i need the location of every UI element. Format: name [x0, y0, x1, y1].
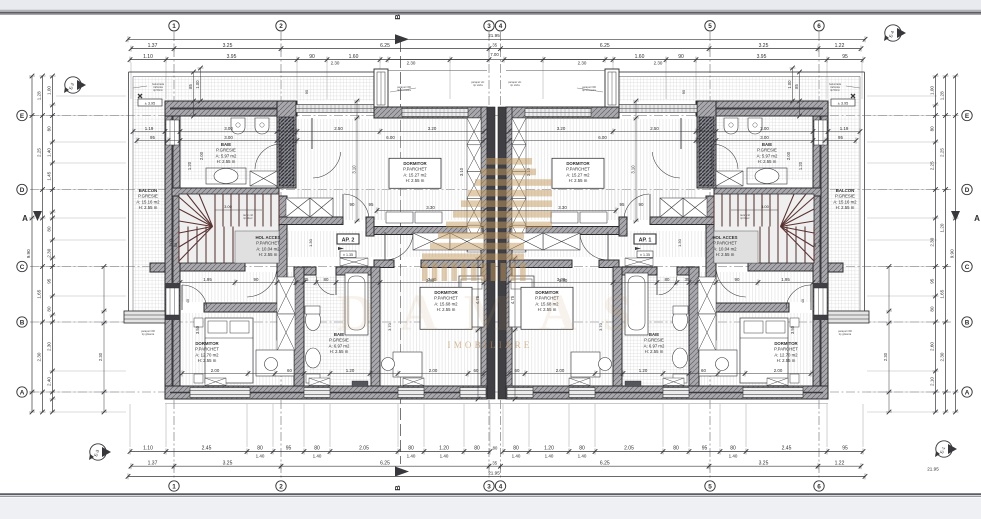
svg-text:2.00: 2.00	[199, 151, 204, 160]
svg-text:A: A	[22, 214, 28, 223]
svg-text:P.PARCHET: P.PARCHET	[566, 167, 590, 172]
svg-text:3.50: 3.50	[195, 325, 200, 334]
svg-text:P.PARCHET: P.PARCHET	[256, 241, 280, 246]
svg-text:50: 50	[174, 243, 178, 247]
svg-text:1.10: 1.10	[143, 446, 153, 452]
svg-text:A: 12.70 m2: A: 12.70 m2	[774, 352, 798, 357]
svg-text:1.37: 1.37	[148, 43, 158, 49]
svg-text:2.30: 2.30	[940, 352, 945, 361]
svg-text:3.95: 3.95	[757, 54, 767, 60]
svg-text:3.00: 3.00	[224, 204, 233, 209]
svg-text:3.30: 3.30	[559, 278, 568, 283]
svg-text:3.30: 3.30	[558, 205, 567, 210]
svg-text:1.20: 1.20	[544, 446, 554, 452]
svg-text:1.28: 1.28	[37, 91, 42, 100]
svg-text:2.30: 2.30	[331, 61, 340, 66]
svg-text:E: E	[20, 113, 25, 120]
svg-text:A: 15.16 m2: A: 15.16 m2	[833, 199, 857, 204]
svg-text:1.20: 1.20	[439, 446, 449, 452]
svg-text:90: 90	[678, 54, 684, 60]
svg-text:1.00: 1.00	[787, 80, 792, 89]
svg-text:H: 2.55 m: H: 2.55 m	[139, 205, 158, 210]
svg-text:1.28: 1.28	[940, 91, 945, 100]
svg-text:A: 5.97 m2: A: 5.97 m2	[757, 153, 778, 158]
svg-text:1.95: 1.95	[203, 277, 212, 282]
svg-text:H: 2.55 m: H: 2.55 m	[217, 159, 236, 164]
svg-text:tip:firisor: tip:firisor	[243, 217, 252, 220]
svg-text:1.40: 1.40	[729, 454, 738, 459]
svg-text:1.60: 1.60	[635, 54, 645, 60]
svg-text:3.25: 3.25	[759, 43, 769, 49]
svg-text:2.45: 2.45	[782, 446, 792, 452]
svg-text:80: 80	[257, 446, 263, 452]
svg-text:40: 40	[290, 128, 294, 132]
svg-text:3: 3	[487, 483, 491, 490]
svg-text:1.40: 1.40	[512, 454, 521, 459]
svg-text:H: 2.55 m: H: 2.55 m	[198, 358, 217, 363]
svg-text:90: 90	[254, 277, 259, 282]
svg-text:95: 95	[702, 446, 708, 452]
svg-text:3.10: 3.10	[351, 165, 356, 174]
svg-text:95: 95	[286, 446, 292, 452]
svg-text:tip glisanta: tip glisanta	[142, 332, 155, 336]
svg-text:80: 80	[474, 446, 480, 452]
svg-text:40: 40	[186, 299, 190, 303]
svg-text:D: D	[965, 187, 970, 194]
svg-text:H: 2.55 m: H: 2.55 m	[259, 252, 278, 257]
svg-text:tip:firisor: tip:firisor	[740, 217, 749, 220]
svg-text:2.00: 2.00	[429, 368, 438, 373]
svg-text:1.40: 1.40	[313, 454, 322, 459]
svg-text:80: 80	[47, 126, 52, 132]
svg-text:40: 40	[699, 128, 703, 132]
svg-text:95: 95	[304, 89, 309, 94]
svg-text:H: 2.55 m: H: 2.55 m	[569, 178, 588, 183]
svg-text:A: 5.97 m2: A: 5.97 m2	[216, 153, 237, 158]
svg-text:5: 5	[708, 483, 712, 490]
svg-text:tip sticla: tip sticla	[473, 83, 483, 87]
svg-text:DORMITOR: DORMITOR	[195, 341, 219, 346]
svg-text:6: 6	[817, 483, 821, 490]
svg-text:DORMITOR: DORMITOR	[566, 161, 590, 166]
svg-text:21.95: 21.95	[488, 470, 500, 475]
svg-text:3.00: 3.00	[761, 204, 770, 209]
svg-text:90: 90	[639, 202, 644, 207]
svg-text:A: 6.97 m2: A: 6.97 m2	[644, 343, 665, 348]
svg-text:3.25: 3.25	[223, 460, 233, 466]
svg-text:1.20: 1.20	[798, 161, 803, 170]
svg-text:80: 80	[673, 446, 679, 452]
svg-text:2.30: 2.30	[47, 342, 52, 351]
svg-text:95: 95	[838, 135, 843, 140]
svg-text:1.20: 1.20	[940, 223, 945, 232]
svg-text:80: 80	[579, 446, 585, 452]
svg-text:IMOBILIARE: IMOBILIARE	[448, 340, 533, 350]
svg-text:A: 15.27 m2: A: 15.27 m2	[403, 172, 427, 177]
svg-text:P.PARCHET: P.PARCHET	[195, 347, 219, 352]
svg-text:2.30: 2.30	[98, 352, 103, 361]
svg-text:3.10: 3.10	[630, 165, 635, 174]
svg-text:P.GRESIE: P.GRESIE	[757, 148, 777, 153]
svg-text:2.05: 2.05	[359, 446, 369, 452]
svg-text:P.GRESIE: P.GRESIE	[835, 194, 855, 199]
svg-text:1.00: 1.00	[47, 86, 52, 95]
svg-text:85: 85	[188, 84, 193, 89]
svg-text:BALCON: BALCON	[836, 188, 854, 193]
svg-text:DORMITOR: DORMITOR	[774, 341, 798, 346]
svg-text:80: 80	[47, 226, 52, 232]
svg-text:3.10: 3.10	[459, 167, 464, 176]
svg-text:tip:50cm: tip:50cm	[153, 88, 163, 92]
svg-text:2.30: 2.30	[883, 352, 888, 361]
svg-text:2.25: 2.25	[940, 148, 945, 157]
svg-text:7.00: 7.00	[490, 52, 499, 57]
svg-text:1.40: 1.40	[407, 454, 416, 459]
svg-text:2.00: 2.00	[774, 368, 783, 373]
svg-text:60: 60	[701, 368, 706, 373]
svg-text:4: 4	[499, 483, 503, 490]
svg-text:H: 2.55 m: H: 2.55 m	[758, 159, 777, 164]
svg-text:95: 95	[47, 278, 52, 284]
svg-text:2.30: 2.30	[47, 248, 52, 257]
svg-text:3: 3	[487, 23, 491, 30]
svg-text:A: A	[965, 389, 970, 396]
svg-text:50: 50	[813, 243, 817, 247]
svg-text:1.30: 1.30	[677, 238, 682, 247]
svg-text:E: E	[965, 113, 970, 120]
svg-text:95: 95	[930, 278, 935, 284]
svg-text:H: 2.55 m: H: 2.55 m	[716, 252, 735, 257]
svg-text:1.40: 1.40	[47, 148, 52, 157]
svg-text:90: 90	[735, 277, 740, 282]
svg-text:1.40: 1.40	[256, 454, 265, 459]
svg-text:2.30: 2.30	[578, 61, 587, 66]
svg-text:35: 35	[492, 461, 497, 466]
svg-text:2.25: 2.25	[37, 148, 42, 157]
svg-text:3.00: 3.00	[817, 238, 822, 247]
svg-text:2.05: 2.05	[624, 446, 634, 452]
svg-text:35: 35	[304, 277, 309, 282]
svg-text:3.20: 3.20	[557, 126, 566, 131]
svg-text:P.PARCHET: P.PARCHET	[774, 347, 798, 352]
svg-text:80: 80	[513, 446, 519, 452]
svg-text:1.65: 1.65	[940, 289, 945, 298]
svg-text:B: B	[393, 485, 402, 491]
svg-text:2.60: 2.60	[930, 342, 935, 351]
svg-text:95: 95	[842, 54, 848, 60]
svg-text:1: 1	[172, 483, 176, 490]
svg-text:1.65: 1.65	[37, 289, 42, 298]
svg-text:1.20: 1.20	[346, 368, 355, 373]
svg-text:H: 2.55 m: H: 2.55 m	[836, 205, 855, 210]
svg-text:A: 15.27 m2: A: 15.27 m2	[566, 172, 590, 177]
svg-text:P.PARCHET: P.PARCHET	[403, 167, 427, 172]
svg-text:80: 80	[324, 277, 329, 282]
svg-text:3.00: 3.00	[760, 126, 769, 131]
svg-text:H: 2.55 m: H: 2.55 m	[777, 358, 796, 363]
svg-text:3.00: 3.00	[760, 135, 769, 140]
svg-text:3.25: 3.25	[759, 460, 769, 466]
svg-text:DAMAS: DAMAS	[337, 285, 658, 342]
svg-text:A: 15.16 m2: A: 15.16 m2	[136, 199, 160, 204]
svg-text:H: 2.55 m: H: 2.55 m	[406, 178, 425, 183]
svg-text:21.95: 21.95	[488, 33, 500, 38]
svg-text:1.22: 1.22	[835, 460, 845, 466]
svg-text:H: 2.55 m: H: 2.55 m	[645, 349, 664, 354]
svg-text:C: C	[965, 264, 970, 271]
svg-text:2.25: 2.25	[930, 161, 935, 170]
svg-text:80: 80	[930, 126, 935, 132]
svg-text:95: 95	[369, 202, 374, 207]
svg-text:2.40: 2.40	[47, 377, 52, 386]
svg-text:1.37: 1.37	[148, 460, 158, 466]
svg-text:95: 95	[150, 135, 155, 140]
svg-text:3.00: 3.00	[168, 238, 173, 247]
svg-text:2.50: 2.50	[334, 126, 343, 131]
svg-text:1.40: 1.40	[545, 454, 554, 459]
svg-text:HOL ACCES: HOL ACCES	[255, 235, 280, 240]
svg-text:D: D	[20, 187, 25, 194]
svg-text:2.00: 2.00	[786, 151, 791, 160]
svg-text:95: 95	[842, 446, 848, 452]
svg-text:2.30: 2.30	[654, 61, 663, 66]
svg-text:80: 80	[314, 446, 320, 452]
svg-text:tip sticla: tip sticla	[510, 83, 520, 87]
svg-text:1.20: 1.20	[639, 368, 648, 373]
svg-text:B: B	[20, 319, 25, 326]
svg-text:A: A	[974, 214, 980, 223]
svg-text:B: B	[965, 319, 970, 326]
svg-text:6.25: 6.25	[380, 43, 390, 49]
svg-text:35: 35	[492, 42, 497, 47]
svg-text:A: 10.04 m2: A: 10.04 m2	[256, 246, 280, 251]
svg-text:6.25: 6.25	[600, 460, 610, 466]
svg-text:B: B	[393, 14, 402, 20]
svg-text:95: 95	[620, 202, 625, 207]
svg-text:2.00: 2.00	[556, 368, 565, 373]
svg-text:BAIE: BAIE	[762, 142, 772, 147]
svg-text:1.95: 1.95	[781, 277, 790, 282]
svg-text:1.60: 1.60	[349, 54, 359, 60]
svg-text:3.30: 3.30	[426, 205, 435, 210]
svg-text:3.95: 3.95	[227, 54, 237, 60]
svg-text:1.10: 1.10	[143, 54, 153, 60]
svg-text:1: 1	[172, 23, 176, 30]
svg-text:80: 80	[730, 446, 736, 452]
svg-text:1.19: 1.19	[840, 126, 849, 131]
svg-text:2.30: 2.30	[37, 352, 42, 361]
svg-text:2.45: 2.45	[202, 446, 212, 452]
svg-text:1.00: 1.00	[930, 86, 935, 95]
svg-text:2.10: 2.10	[930, 377, 935, 386]
svg-text:A: 6.97 m2: A: 6.97 m2	[329, 343, 350, 348]
svg-text:9.90: 9.90	[950, 249, 955, 258]
svg-text:21.95: 21.95	[927, 467, 939, 472]
svg-text:60: 60	[287, 368, 292, 373]
svg-text:± 1.35: ± 1.35	[343, 253, 353, 257]
svg-text:80: 80	[47, 306, 52, 312]
svg-text:3.00: 3.00	[224, 126, 233, 131]
svg-text:HOL ACCES: HOL ACCES	[712, 235, 737, 240]
svg-text:2.00: 2.00	[211, 368, 220, 373]
svg-text:1.30: 1.30	[308, 238, 313, 247]
svg-text:1.40: 1.40	[578, 454, 587, 459]
svg-text:6.00: 6.00	[386, 135, 395, 140]
svg-text:C: C	[20, 264, 25, 271]
svg-text:4: 4	[499, 23, 503, 30]
svg-text:90: 90	[309, 54, 315, 60]
svg-text:AP. 1: AP. 1	[639, 238, 652, 244]
svg-text:1.22: 1.22	[835, 43, 845, 49]
svg-text:tip:50cm: tip:50cm	[830, 88, 840, 92]
svg-text:40: 40	[801, 299, 805, 303]
svg-text:95: 95	[681, 89, 686, 94]
svg-text:DORMITOR: DORMITOR	[403, 161, 427, 166]
svg-text:3.50: 3.50	[790, 325, 795, 334]
svg-text:35: 35	[685, 277, 690, 282]
svg-text:BALCON: BALCON	[139, 188, 157, 193]
svg-text:3.25: 3.25	[223, 43, 233, 49]
svg-text:6.00: 6.00	[598, 135, 607, 140]
svg-text:1.00: 1.00	[195, 80, 200, 89]
svg-text:1.40: 1.40	[440, 454, 449, 459]
svg-text:A: 12.70 m2: A: 12.70 m2	[195, 352, 219, 357]
svg-text:1.20: 1.20	[187, 161, 192, 170]
svg-text:2.30: 2.30	[930, 237, 935, 246]
svg-text:2.50: 2.50	[650, 126, 659, 131]
svg-text:2: 2	[279, 483, 283, 490]
svg-text:± 3.95: ± 3.95	[145, 101, 156, 105]
svg-text:6.25: 6.25	[380, 460, 390, 466]
svg-text:2: 2	[279, 23, 283, 30]
svg-text:80: 80	[930, 306, 935, 312]
svg-text:AP. 2: AP. 2	[342, 238, 355, 244]
svg-text:2.30: 2.30	[407, 61, 416, 66]
svg-text:60: 60	[515, 368, 520, 373]
svg-text:tip glisanta: tip glisanta	[839, 332, 852, 336]
svg-text:± 3.95: ± 3.95	[838, 101, 849, 105]
svg-text:3.00: 3.00	[224, 135, 233, 140]
svg-text:1.19: 1.19	[145, 126, 154, 131]
svg-text:85: 85	[794, 84, 799, 89]
svg-text:80: 80	[408, 446, 414, 452]
svg-text:H: 2.55 m: H: 2.55 m	[330, 349, 349, 354]
svg-text:9.90: 9.90	[26, 249, 31, 258]
svg-text:A: 10.04 m2: A: 10.04 m2	[713, 246, 737, 251]
svg-text:5: 5	[708, 23, 712, 30]
svg-text:P.PARCHET: P.PARCHET	[713, 241, 737, 246]
svg-text:80: 80	[665, 277, 670, 282]
svg-text:A: A	[20, 389, 25, 396]
svg-text:P.GRESIE: P.GRESIE	[138, 194, 158, 199]
svg-text:6.25: 6.25	[600, 43, 610, 49]
svg-text:6: 6	[817, 23, 821, 30]
svg-text:80: 80	[493, 445, 498, 450]
svg-text:± 1.35: ± 1.35	[640, 253, 650, 257]
svg-text:BAIE: BAIE	[221, 142, 231, 147]
svg-text:3.20: 3.20	[428, 126, 437, 131]
svg-text:90: 90	[350, 202, 355, 207]
svg-text:1.45: 1.45	[47, 171, 52, 180]
svg-text:P.GRESIE: P.GRESIE	[216, 148, 236, 153]
